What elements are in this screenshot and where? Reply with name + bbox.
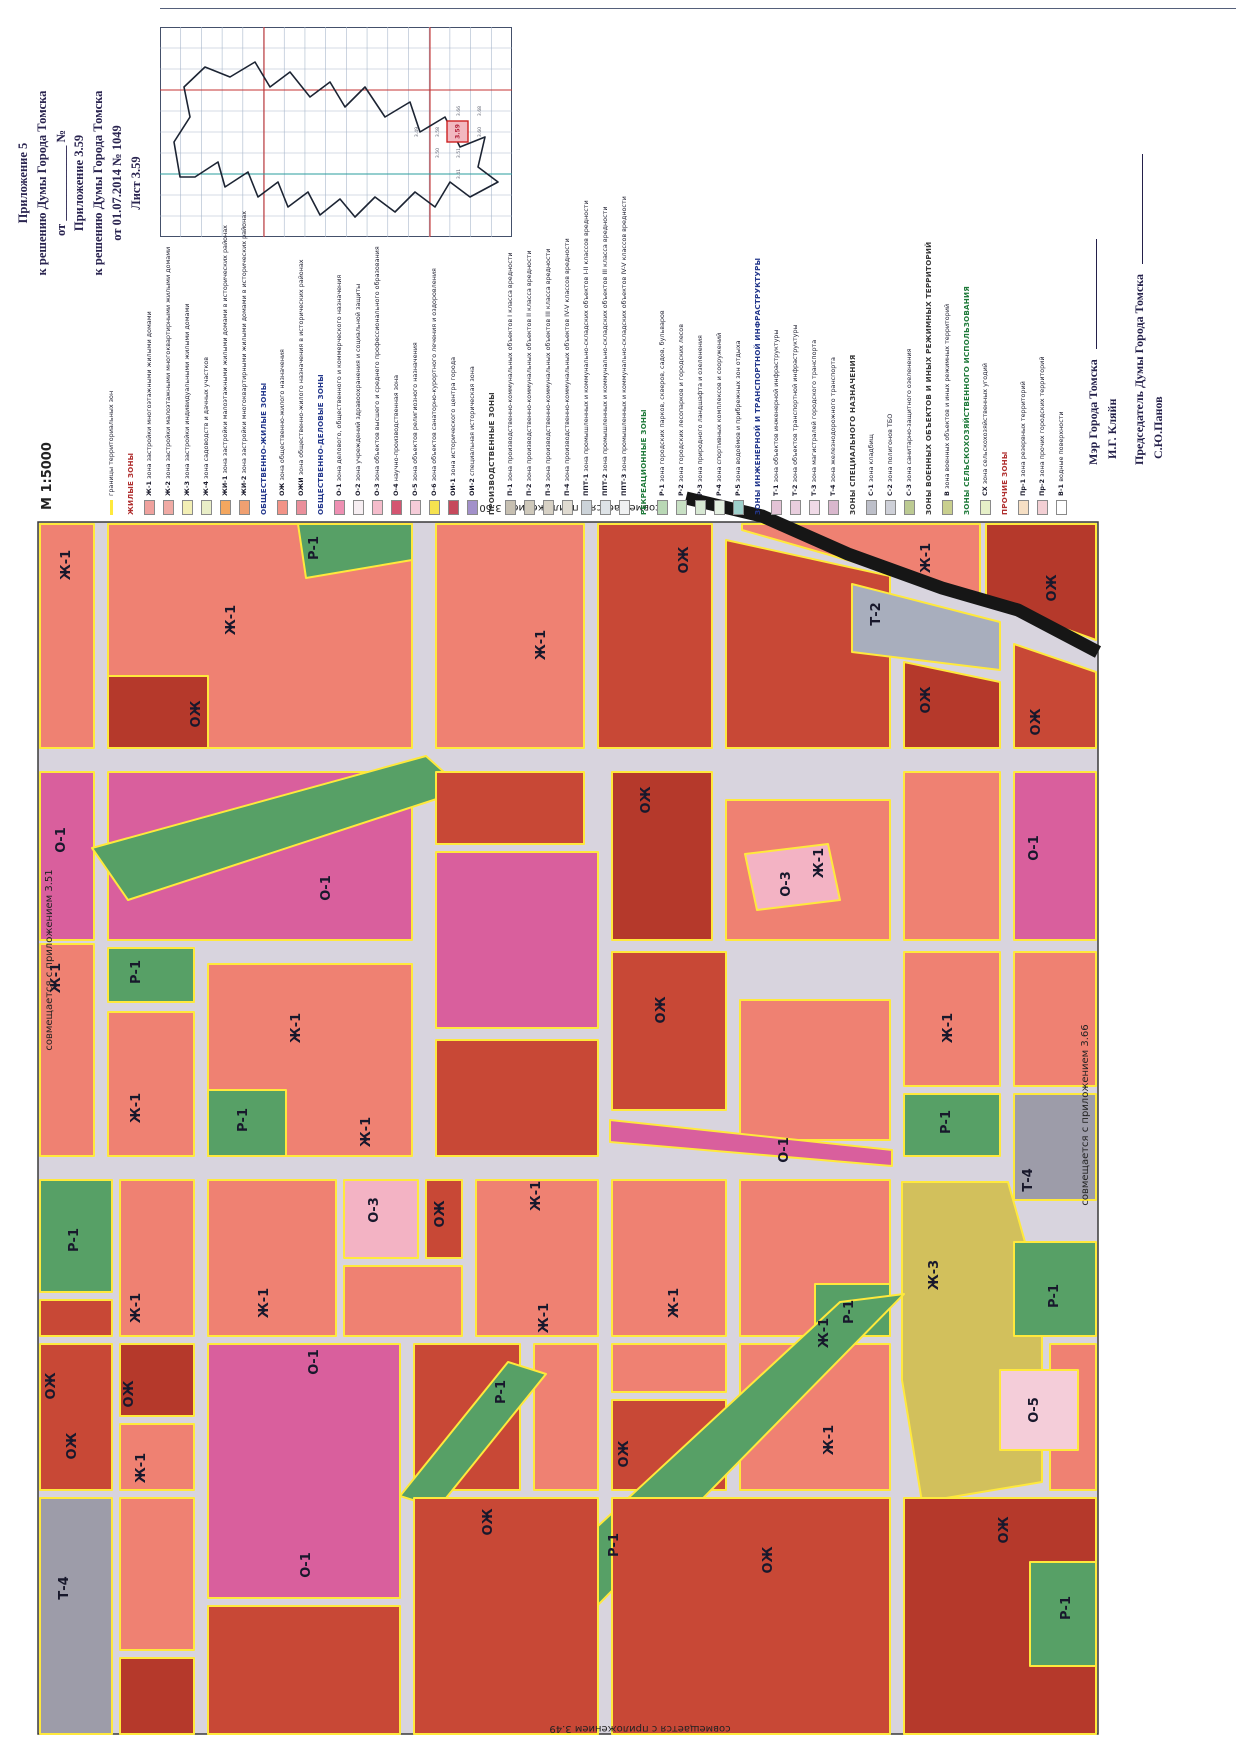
zone-label: Ж-1 <box>529 1181 544 1211</box>
zone-label: О-5 <box>1027 1397 1042 1423</box>
legend-swatch <box>220 500 231 515</box>
legend-swatch <box>524 500 535 515</box>
zone-label: Р-1 <box>494 1380 509 1404</box>
zone-block-Ж-1 <box>740 1000 890 1140</box>
zone-label: Ж-1 <box>129 1293 144 1323</box>
legend-group-header: ЗОНЫ СПЕЦИАЛЬНОГО НАЗНАЧЕНИЯ <box>843 0 862 515</box>
signature-name: И.Г. Кляйн <box>1105 13 1120 465</box>
legend-zone-code: ОИ-1 <box>449 476 457 496</box>
legend-zone-code: Ж-1 <box>145 479 153 496</box>
legend-swatch <box>467 500 478 515</box>
legend-zone-code: ЖИ-2 <box>240 474 248 497</box>
legend-swatch <box>448 500 459 515</box>
legend-label: С-3 зона санитарно-защитного озеленения <box>906 349 912 496</box>
zone-label: Т-2 <box>869 602 884 625</box>
legend-swatch <box>296 500 307 515</box>
legend-entry: Ж-3 зона застройки индивидуальными жилым… <box>178 0 197 515</box>
legend-zone-code: ЖИ-1 <box>221 474 229 497</box>
zone-label: О-3 <box>779 871 794 897</box>
zone-label: ОЖ <box>1029 708 1044 735</box>
legend-entry: ОЖ зона общественно-жилого назначения <box>273 0 292 515</box>
legend-label: С-1 зона кладбищ <box>868 434 874 496</box>
zone-label: Ж-1 <box>257 1288 272 1318</box>
legend-zone-code: ППТ-2 <box>601 472 609 496</box>
edge-note: совмещается с приложением 3.66 <box>1080 1024 1091 1205</box>
legend-label: О-2 зона учреждений здравоохранения и со… <box>355 284 361 496</box>
signature-title: Мэр Города Томска <box>1086 13 1101 465</box>
legend-group-title: ОБЩЕСТВЕННО-ЖИЛЫЕ ЗОНЫ <box>259 383 268 515</box>
legend-entry: ЖИ-1 зона застройки малоэтажными жилыми … <box>216 0 235 515</box>
legend-entry: ОЖИ зона общественно-жилого назначения в… <box>292 0 311 515</box>
legend-zone-code: ППТ-3 <box>620 472 628 496</box>
legend-swatch <box>790 500 801 515</box>
legend-zone-code: С-3 <box>905 482 913 496</box>
legend-swatch <box>543 500 554 515</box>
zone-block-Ж-1 <box>120 1498 194 1650</box>
legend-label: Пр-1 зона резервных территорий <box>1020 381 1026 496</box>
legend-swatch <box>277 500 288 515</box>
zone-label: О-1 <box>307 1349 322 1375</box>
legend-zone-code: ОЖ <box>278 481 286 496</box>
legend-group-title: ЗОНЫ ВОЕННЫХ ОБЪЕКТОВ И ИНЫХ РЕЖИМНЫХ ТЕ… <box>924 242 933 515</box>
legend-group-title: ОБЩЕСТВЕННО-ДЕЛОВЫЕ ЗОНЫ <box>316 374 325 515</box>
legend-zone-code: ОЖИ <box>297 475 305 496</box>
zone-label: О-3 <box>367 1197 382 1223</box>
legend-label: Т-4 зона железнодорожного транспорта <box>830 357 836 496</box>
legend-zone-code: ОИ-2 <box>468 476 476 496</box>
legend-label: Р-2 зона городских лесопарков и городски… <box>678 324 684 496</box>
legend-group-title: ЗОНЫ СПЕЦИАЛЬНОГО НАЗНАЧЕНИЯ <box>848 354 857 515</box>
zone-label: ОЖ <box>997 1516 1012 1543</box>
legend-label: О-3 зона объектов высшего и среднего про… <box>374 246 380 496</box>
legend-label: О-5 зона объектов религиозного назначени… <box>412 342 418 496</box>
zone-block-Ж-1 <box>208 1180 336 1336</box>
zone-label: Ж-1 <box>941 1013 956 1043</box>
zone-block-Ж-1 <box>344 1266 462 1336</box>
legend-entry: ЖИ-2 зона застройки многоквартирными жил… <box>235 0 254 515</box>
zone-label: О-1 <box>54 827 69 853</box>
legend-label: П-4 зона производственно-коммунальных об… <box>564 238 570 496</box>
legend-swatch <box>657 500 668 515</box>
legend-label: ОИ-1 зона исторического центра города <box>450 357 456 496</box>
legend-entry: П-1 зона производственно-коммунальных об… <box>501 0 520 515</box>
legend-entry: О-1 зона делового, общественного и комме… <box>330 0 349 515</box>
zone-label: Ж-1 <box>817 1318 832 1348</box>
zone-label: ОЖ <box>919 686 934 713</box>
zone-label: Ж-1 <box>359 1117 374 1147</box>
legend-entry: П-2 зона производственно-коммунальных об… <box>520 0 539 515</box>
legend-swatch <box>581 500 592 515</box>
legend-entry: О-2 зона учреждений здравоохранения и со… <box>349 0 368 515</box>
legend-swatch <box>505 500 516 515</box>
legend-label: ОЖ зона общественно-жилого назначения <box>279 349 285 496</box>
legend-label: Р-4 зона спортивных комплексов и сооруже… <box>716 333 722 496</box>
zone-label: ОЖ <box>481 1508 496 1535</box>
map-scale-label: М 1:5000 <box>40 442 55 510</box>
legend-entry: Р-1 зона городских парков, скверов, садо… <box>653 0 672 515</box>
zone-block-ОЖ <box>120 1658 194 1734</box>
legend-swatch <box>1018 500 1029 515</box>
legend-zone-code: Т-4 <box>829 482 837 496</box>
legend-swatch <box>353 500 364 515</box>
zone-label: Ж-1 <box>822 1425 837 1455</box>
legend-group-title: ЗОНЫ ИНЖЕНЕРНОЙ И ТРАНСПОРТНОЙ ИНФРАСТРУ… <box>753 258 762 515</box>
zone-block-ОЖ <box>612 952 726 1110</box>
legend-entry: О-5 зона объектов религиозного назначени… <box>406 0 425 515</box>
legend-entry: О-4 научно-производственная зона <box>387 0 406 515</box>
legend-swatch <box>110 500 113 515</box>
legend-zone-code: П-1 <box>506 481 514 496</box>
zone-label: Р-1 <box>1059 1596 1074 1620</box>
legend-swatch <box>429 500 440 515</box>
zone-block-Р-1 <box>108 948 194 1002</box>
legend-label: Р-1 зона городских парков, скверов, садо… <box>659 310 665 496</box>
zone-block-ОЖ <box>208 1606 400 1734</box>
zone-label: Ж-1 <box>667 1288 682 1318</box>
legend-zone-code: О-5 <box>411 481 419 496</box>
zone-label: ОЖ <box>677 546 692 573</box>
legend-label: П-2 зона производственно-коммунальных об… <box>526 251 532 496</box>
legend-group-title: РЕКРЕАЦИОННЫЕ ЗОНЫ <box>639 409 648 515</box>
legend-label: О-6 зона объектов санаторно-курортного л… <box>431 268 437 496</box>
scanned-zoning-map-page: Ж-1Ж-1Р-1Ж-1ОЖЖ-1ОЖТ-2ОЖОЖОЖОЖО-1О-1О-1Ж… <box>0 0 1240 1753</box>
zone-label: Р-1 <box>842 1300 857 1324</box>
legend-entry: Пр-2 зона прочих городских территорий <box>1033 0 1052 515</box>
legend-swatch <box>334 500 345 515</box>
zone-block-Ж-1 <box>120 1424 194 1490</box>
zone-label: О-1 <box>319 875 334 901</box>
legend-label: ОЖИ зона общественно-жилого назначения в… <box>298 259 304 496</box>
legend-label: Пр-2 зона прочих городских территорий <box>1039 357 1045 496</box>
zone-label: Р-1 <box>236 1108 251 1132</box>
legend-group-header: ЖИЛЫЕ ЗОНЫ <box>121 0 140 515</box>
legend-entry: В-1 водные поверхности <box>1052 0 1071 515</box>
legend-label: В зона военных объектов и иных режимных … <box>944 304 950 496</box>
legend-group-title: ЖИЛЫЕ ЗОНЫ <box>126 453 135 515</box>
legend-swatch <box>1037 500 1048 515</box>
legend-entry: Р-3 зона природного ландшафта и озеленен… <box>691 0 710 515</box>
legend-label: О-1 зона делового, общественного и комме… <box>336 275 342 496</box>
legend-entry: Пр-1 зона резервных территорий <box>1014 0 1033 515</box>
legend-zone-code: Т-1 <box>772 482 780 496</box>
edge-note: совмещается с приложением 3.51 <box>44 869 55 1050</box>
legend-group-header: ЗОНЫ СЕЛЬСКОХОЗЯЙСТВЕННОГО ИСПОЛЬЗОВАНИЯ <box>957 0 976 515</box>
signature-line <box>1086 239 1097 349</box>
legend-zone-code: Ж-3 <box>183 479 191 496</box>
zone-block-ОЖ <box>612 772 712 940</box>
zone-label: ОЖ <box>433 1200 448 1227</box>
legend-zone-code: ППТ-1 <box>582 472 590 496</box>
legend-group-header: ОБЩЕСТВЕННО-ДЕЛОВЫЕ ЗОНЫ <box>311 0 330 515</box>
legend-zone-code: Ж-2 <box>164 479 172 496</box>
legend-swatch <box>239 500 250 515</box>
legend-group-header: ЗОНЫ ВОЕННЫХ ОБЪЕКТОВ И ИНЫХ РЕЖИМНЫХ ТЕ… <box>919 0 938 515</box>
zone-label: ОЖ <box>617 1440 632 1467</box>
legend-entry: С-1 зона кладбищ <box>862 0 881 515</box>
legend-swatch <box>144 500 155 515</box>
zone-block-ОЖ <box>612 1498 890 1734</box>
zone-label: Т-4 <box>57 1576 72 1599</box>
legend-entry: П-3 зона производственно-коммунальных об… <box>539 0 558 515</box>
legend-label: СХ зона сельскохозяйственных угодий <box>982 363 988 496</box>
zone-label: Ж-1 <box>812 848 827 878</box>
legend-swatch <box>1056 500 1067 515</box>
zone-label: Ж-1 <box>224 605 239 635</box>
zone-block-Ж-1 <box>436 524 584 748</box>
legend-swatch <box>904 500 915 515</box>
legend-swatch <box>980 500 991 515</box>
legend-entry: Р-2 зона городских лесопарков и городски… <box>672 0 691 515</box>
legend-zone-code: Ж-4 <box>202 479 210 496</box>
legend-entry: О-6 зона объектов санаторно-курортного л… <box>425 0 444 515</box>
zone-label: Ж-1 <box>129 1093 144 1123</box>
legend-entry: Т-1 зона объектов инженерной инфраструкт… <box>767 0 786 515</box>
zone-label: Р-1 <box>129 960 144 984</box>
legend-entry: П-4 зона производственно-коммунальных об… <box>558 0 577 515</box>
zone-label: ОЖ <box>761 1546 776 1573</box>
legend-label: Р-3 зона природного ландшафта и озеленен… <box>697 335 703 496</box>
header-line: Приложение 5 <box>14 13 33 353</box>
zone-block-ОЖ <box>414 1498 598 1734</box>
legend-entry: С-3 зона санитарно-защитного озеленения <box>900 0 919 515</box>
legend-zone-code: В-1 <box>1057 482 1065 496</box>
legend-swatch <box>733 500 744 515</box>
zone-label: Р-1 <box>1047 1284 1062 1308</box>
zone-block-ОЖ <box>598 524 712 748</box>
legend-zone-code: СХ <box>981 484 989 496</box>
zone-block-ОЖ <box>436 1040 598 1156</box>
map-sheet-landscape: Ж-1Ж-1Р-1Ж-1ОЖЖ-1ОЖТ-2ОЖОЖОЖОЖО-1О-1О-1Ж… <box>0 0 1240 1753</box>
legend-label: границы территориальных зон <box>108 391 114 496</box>
legend-entry: СХ зона сельскохозяйственных угодий <box>976 0 995 515</box>
legend-zone-code: О-3 <box>373 481 381 496</box>
legend-label: Т-1 зона объектов инженерной инфраструкт… <box>773 330 779 496</box>
legend-label: Р-5 зона водоёмов и прибрежных зон отдых… <box>735 340 741 496</box>
zone-label: ОЖ <box>65 1432 80 1459</box>
zone-label: Ж-1 <box>289 1013 304 1043</box>
zone-label: ОЖ <box>122 1380 137 1407</box>
legend-zone-code: Пр-1 <box>1019 477 1027 496</box>
legend-entry: Р-4 зона спортивных комплексов и сооруже… <box>710 0 729 515</box>
legend-zone-code: П-4 <box>563 481 571 496</box>
legend-label: С-2 зона полигонов ТБО <box>887 414 893 496</box>
legend-zone-code: Пр-2 <box>1038 477 1046 496</box>
legend-zone-code: С-1 <box>867 482 875 496</box>
zone-label: О-1 <box>777 1137 792 1163</box>
legend-swatch <box>885 500 896 515</box>
zone-block-Ж-1 <box>534 1344 598 1490</box>
zone-label: ОЖ <box>654 996 669 1023</box>
legend-label: ППТ-3 зона промышленных и коммунально-ск… <box>621 196 627 496</box>
legend-label: ППТ-2 зона промышленных и коммунально-ск… <box>602 206 608 496</box>
legend-swatch <box>676 500 687 515</box>
legend-swatch <box>600 500 611 515</box>
legend-swatch <box>942 500 953 515</box>
legend-swatch <box>182 500 193 515</box>
legend-zone-code: О-6 <box>430 481 438 496</box>
legend-group-title: ПРОЧИЕ ЗОНЫ <box>1000 451 1009 515</box>
zone-block-Ж-1 <box>904 772 1000 940</box>
zone-label: Ж-1 <box>537 1303 552 1333</box>
legend-entry: ППТ-2 зона промышленных и коммунально-ск… <box>596 0 615 515</box>
legend-swatch <box>562 500 573 515</box>
zone-label: Т-4 <box>1021 1168 1036 1191</box>
zone-label: Ж-1 <box>59 550 74 580</box>
legend-zone-code: Р-4 <box>715 482 723 496</box>
legend-entry: ОИ-1 зона исторического центра города <box>444 0 463 515</box>
legend-label: П-3 зона производственно-коммунальных об… <box>545 249 551 496</box>
legend-zone-code: Т-2 <box>791 482 799 496</box>
zone-label: Ж-3 <box>927 1260 942 1290</box>
legend-label: Ж-3 зона застройки индивидуальными жилым… <box>184 304 190 496</box>
zone-label: О-1 <box>1027 835 1042 861</box>
legend-zone-code: Р-3 <box>696 482 704 496</box>
legend-group-header: РЕКРЕАЦИОННЫЕ ЗОНЫ <box>634 0 653 515</box>
legend-label: Т-2 зона объектов транспортной инфрастру… <box>792 324 798 496</box>
legend-group-header: ПРОЧИЕ ЗОНЫ <box>995 0 1014 515</box>
legend-group-title: ЗОНЫ СЕЛЬСКОХОЗЯЙСТВЕННОГО ИСПОЛЬЗОВАНИЯ <box>962 286 971 515</box>
legend-swatch <box>372 500 383 515</box>
legend-entry: Т-3 зона магистралей городского транспор… <box>805 0 824 515</box>
zone-block-Ж-1 <box>108 1012 194 1156</box>
zone-block-О-1 <box>436 852 598 1028</box>
zone-label: ОЖ <box>189 700 204 727</box>
legend-swatch <box>391 500 402 515</box>
legend-zone-code: Р-5 <box>734 482 742 496</box>
legend-entry: ОИ-2 специальная историческая зона <box>463 0 482 515</box>
legend-label: Ж-1 зона застройки многоэтажными жилыми … <box>146 311 152 496</box>
legend-entry: В зона военных объектов и иных режимных … <box>938 0 957 515</box>
zone-label: Р-1 <box>67 1228 82 1252</box>
legend-group-header: ЗОНЫ ИНЖЕНЕРНОЙ И ТРАНСПОРТНОЙ ИНФРАСТРУ… <box>748 0 767 515</box>
legend-zone-code: Т-3 <box>810 482 818 496</box>
zone-block-Т-4 <box>40 1498 112 1734</box>
signatures: Мэр Города ТомскаИ.Г. КляйнПредседатель … <box>1086 13 1178 465</box>
legend: границы территориальных зонЖИЛЫЕ ЗОНЫЖ-1… <box>102 0 1071 515</box>
legend-entry: Ж-1 зона застройки многоэтажными жилыми … <box>140 0 159 515</box>
zone-label: ОЖ <box>44 1372 59 1399</box>
legend-swatch <box>866 500 877 515</box>
legend-zone-code: О-2 <box>354 481 362 496</box>
legend-label: Ж-4 зона садоводств и дачных участков <box>203 357 209 496</box>
legend-zone-code: П-3 <box>544 481 552 496</box>
zone-label: Р-1 <box>307 536 322 560</box>
legend-entry: Т-4 зона железнодорожного транспорта <box>824 0 843 515</box>
zone-label: Ж-1 <box>134 1453 149 1483</box>
legend-entry: Ж-2 зона застройки малоэтажными многоква… <box>159 0 178 515</box>
legend-group-header: ПРОИЗВОДСТВЕННЫЕ ЗОНЫ <box>482 0 501 515</box>
legend-entry: Ж-4 зона садоводств и дачных участков <box>197 0 216 515</box>
zone-label: ОЖ <box>1045 574 1060 601</box>
legend-zone-code: В <box>943 489 951 496</box>
signature-line <box>1132 154 1143 264</box>
zone-block-ОЖ <box>40 1300 112 1336</box>
legend-swatch <box>809 500 820 515</box>
legend-swatch <box>163 500 174 515</box>
legend-swatch <box>619 500 630 515</box>
zone-label: ОЖ <box>639 786 654 813</box>
zone-label: Ж-1 <box>919 543 934 573</box>
zone-label: Ж-1 <box>534 630 549 660</box>
legend-swatch <box>695 500 706 515</box>
legend-label: ОИ-2 специальная историческая зона <box>469 366 475 496</box>
zone-label: О-1 <box>299 1552 314 1578</box>
legend-label: ЖИ-2 зона застройки многоквартирными жил… <box>241 211 247 496</box>
legend-zone-code: О-1 <box>335 481 343 496</box>
zone-label: Р-1 <box>607 1533 622 1557</box>
legend-swatch <box>201 500 212 515</box>
legend-entry: границы территориальных зон <box>102 0 121 515</box>
legend-entry: ППТ-1 зона промышленных и коммунально-ск… <box>577 0 596 515</box>
legend-swatch <box>714 500 725 515</box>
legend-label: П-1 зона производственно-коммунальных об… <box>507 252 513 496</box>
header-line: от ____________ № <box>52 13 71 353</box>
legend-swatch <box>410 500 421 515</box>
signature-name: С.Ю.Панов <box>1151 13 1166 465</box>
legend-label: ППТ-1 зона промышленных и коммунально-ск… <box>583 200 589 496</box>
legend-label: Т-3 зона магистралей городского транспор… <box>811 340 817 496</box>
legend-zone-code: С-2 <box>886 482 894 496</box>
legend-swatch <box>771 500 782 515</box>
legend-group-title: ПРОИЗВОДСТВЕННЫЕ ЗОНЫ <box>487 392 496 515</box>
legend-label: Ж-2 зона застройки малоэтажными многоква… <box>165 247 171 496</box>
zone-block-Ж-3 <box>902 1182 1042 1502</box>
legend-entry: Т-2 зона объектов транспортной инфрастру… <box>786 0 805 515</box>
zone-label: Р-1 <box>939 1110 954 1134</box>
legend-label: ЖИ-1 зона застройки малоэтажными жилыми … <box>222 225 228 496</box>
legend-entry: О-3 зона объектов высшего и среднего про… <box>368 0 387 515</box>
legend-zone-code: Р-1 <box>658 482 666 496</box>
legend-entry: С-2 зона полигонов ТБО <box>881 0 900 515</box>
legend-zone-code: Р-2 <box>677 482 685 496</box>
legend-label: О-4 научно-производственная зона <box>393 375 399 496</box>
legend-entry: ППТ-3 зона промышленных и коммунально-ск… <box>615 0 634 515</box>
zone-block-ОЖ <box>436 772 584 844</box>
signature-title: Председатель Думы Города Томска <box>1132 13 1147 465</box>
edge-note: совмещается с приложением 3.49 <box>549 1723 730 1734</box>
zone-block-Ж-1 <box>612 1344 726 1392</box>
legend-swatch <box>828 500 839 515</box>
zone-block-ОЖ <box>40 1344 112 1490</box>
header-line: к решению Думы Города Томска <box>33 13 52 353</box>
legend-label: В-1 водные поверхности <box>1058 411 1064 496</box>
legend-group-header: ОБЩЕСТВЕННО-ЖИЛЫЕ ЗОНЫ <box>254 0 273 515</box>
legend-zone-code: П-2 <box>525 481 533 496</box>
legend-zone-code: О-4 <box>392 481 400 496</box>
legend-entry: Р-5 зона водоёмов и прибрежных зон отдых… <box>729 0 748 515</box>
header-line: Приложение 3.59 <box>70 13 89 353</box>
